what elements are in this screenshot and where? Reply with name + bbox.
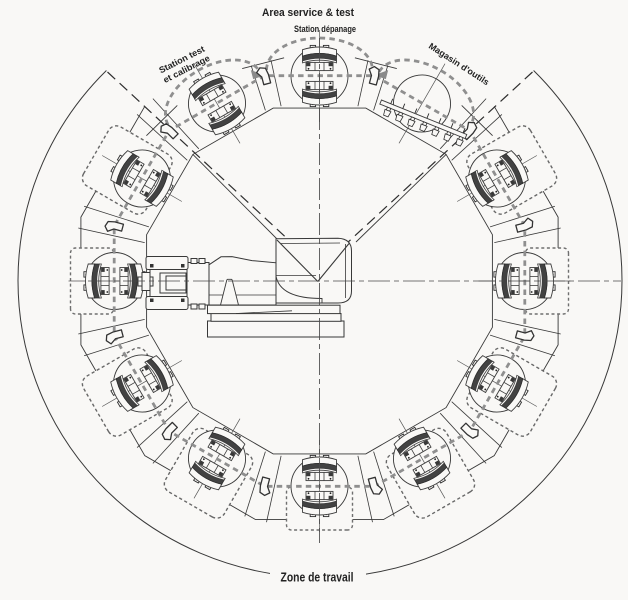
svg-text:Zone de travail: Zone de travail — [281, 571, 354, 585]
svg-text:Area service & test: Area service & test — [262, 7, 354, 19]
svg-text:Station dépanage: Station dépanage — [294, 24, 356, 34]
